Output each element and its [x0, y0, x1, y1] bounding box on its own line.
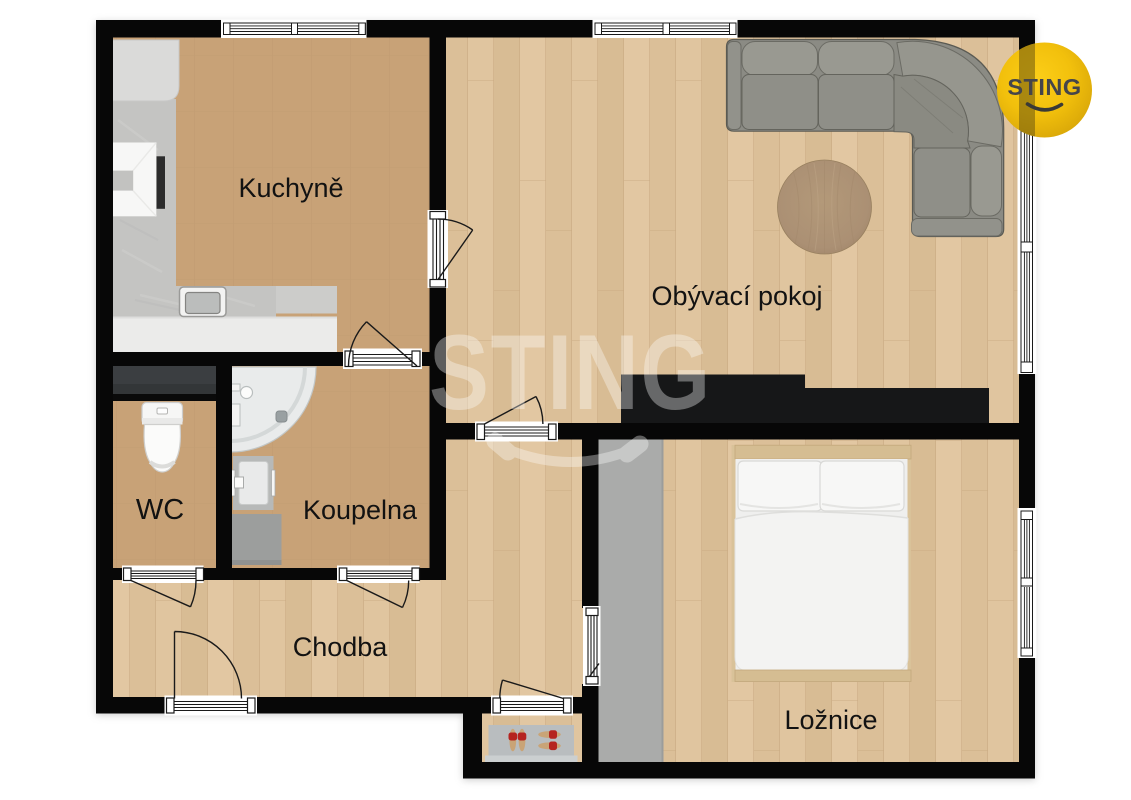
svg-text:Chodba: Chodba [293, 632, 389, 662]
svg-text:WC: WC [136, 494, 184, 526]
svg-text:Obývací pokoj: Obývací pokoj [651, 281, 822, 311]
svg-text:Ložnice: Ložnice [784, 705, 877, 735]
svg-text:STING: STING [429, 313, 712, 432]
svg-text:Koupelna: Koupelna [303, 495, 418, 525]
svg-text:STING: STING [1007, 74, 1081, 100]
svg-text:Kuchyně: Kuchyně [238, 173, 343, 203]
